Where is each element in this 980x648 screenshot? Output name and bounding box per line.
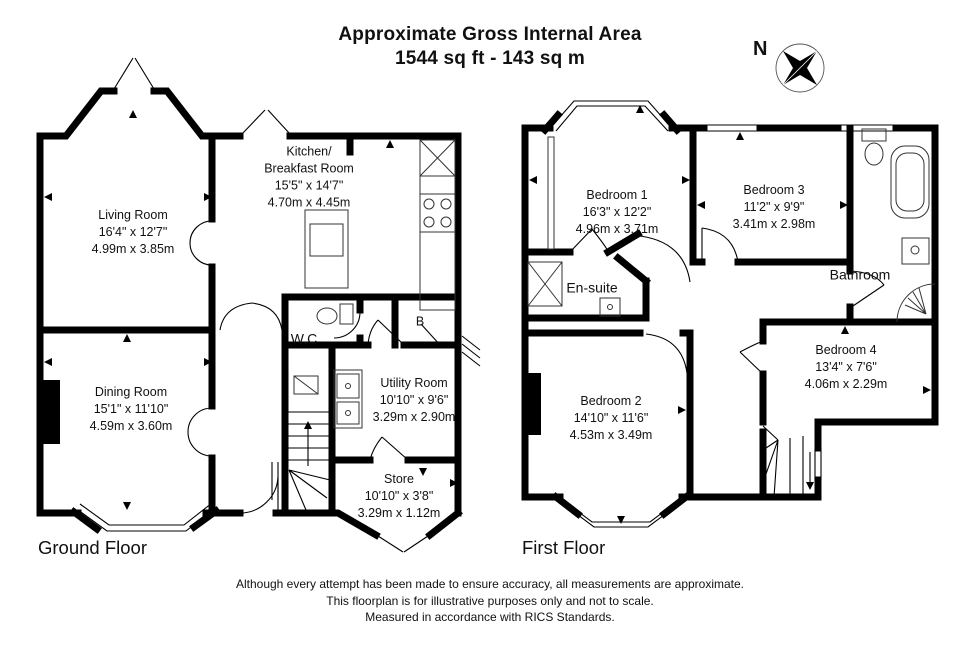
- staircase-first: [763, 426, 814, 497]
- staircase: [272, 376, 330, 510]
- compass-north-label: N: [753, 38, 767, 61]
- disclaimer-line-2: This floorplan is for illustrative purpo…: [0, 594, 980, 608]
- room-label-wc: W.C: [291, 311, 317, 368]
- room-label-bathroom: Bathroom: [830, 247, 891, 304]
- wc-toilet: [317, 304, 353, 324]
- floorplan-page: Approximate Gross Internal Area 1544 sq …: [0, 0, 980, 648]
- room-label-living-room: Living Room16'4" x 12'7"4.99m x 3.85m: [92, 190, 175, 274]
- room-label-bedroom-3: Bedroom 311'2" x 9'9"3.41m x 2.98m: [733, 165, 816, 249]
- room-label-store: Store10'10" x 3'8"3.29m x 1.12m: [358, 454, 441, 538]
- first-floor-label: First Floor: [522, 537, 605, 559]
- room-label-boiler: B: [416, 297, 424, 348]
- room-label-dining-room: Dining Room15'1" x 11'10"4.59m x 3.60m: [90, 367, 173, 451]
- room-label-bedroom-2: Bedroom 214'10" x 11'6"4.53m x 3.49m: [570, 376, 653, 460]
- room-label-bedroom-4: Bedroom 413'4" x 7'6"4.06m x 2.29m: [805, 325, 888, 409]
- disclaimer-line-1: Although every attempt has been made to …: [0, 577, 980, 591]
- room-label-utility-room: Utility Room10'10" x 9'6"3.29m x 2.90m: [373, 358, 456, 442]
- room-label-kitchen: Kitchen/ Breakfast Room15'5" x 14'7"4.70…: [264, 126, 354, 227]
- room-label-ensuite: En-suite: [566, 260, 617, 317]
- page-subtitle: 1544 sq ft - 143 sq m: [0, 48, 980, 70]
- bedroom1-bay-window: [552, 101, 670, 131]
- page-title: Approximate Gross Internal Area: [0, 24, 980, 46]
- disclaimer-line-3: Measured in accordance with RICS Standar…: [0, 610, 980, 624]
- utility-sink: [334, 370, 362, 428]
- room-label-bedroom-1: Bedroom 116'3" x 12'2"4.96m x 3.71m: [576, 170, 659, 254]
- ground-floor-label: Ground Floor: [38, 537, 147, 559]
- stair-window: [815, 448, 821, 480]
